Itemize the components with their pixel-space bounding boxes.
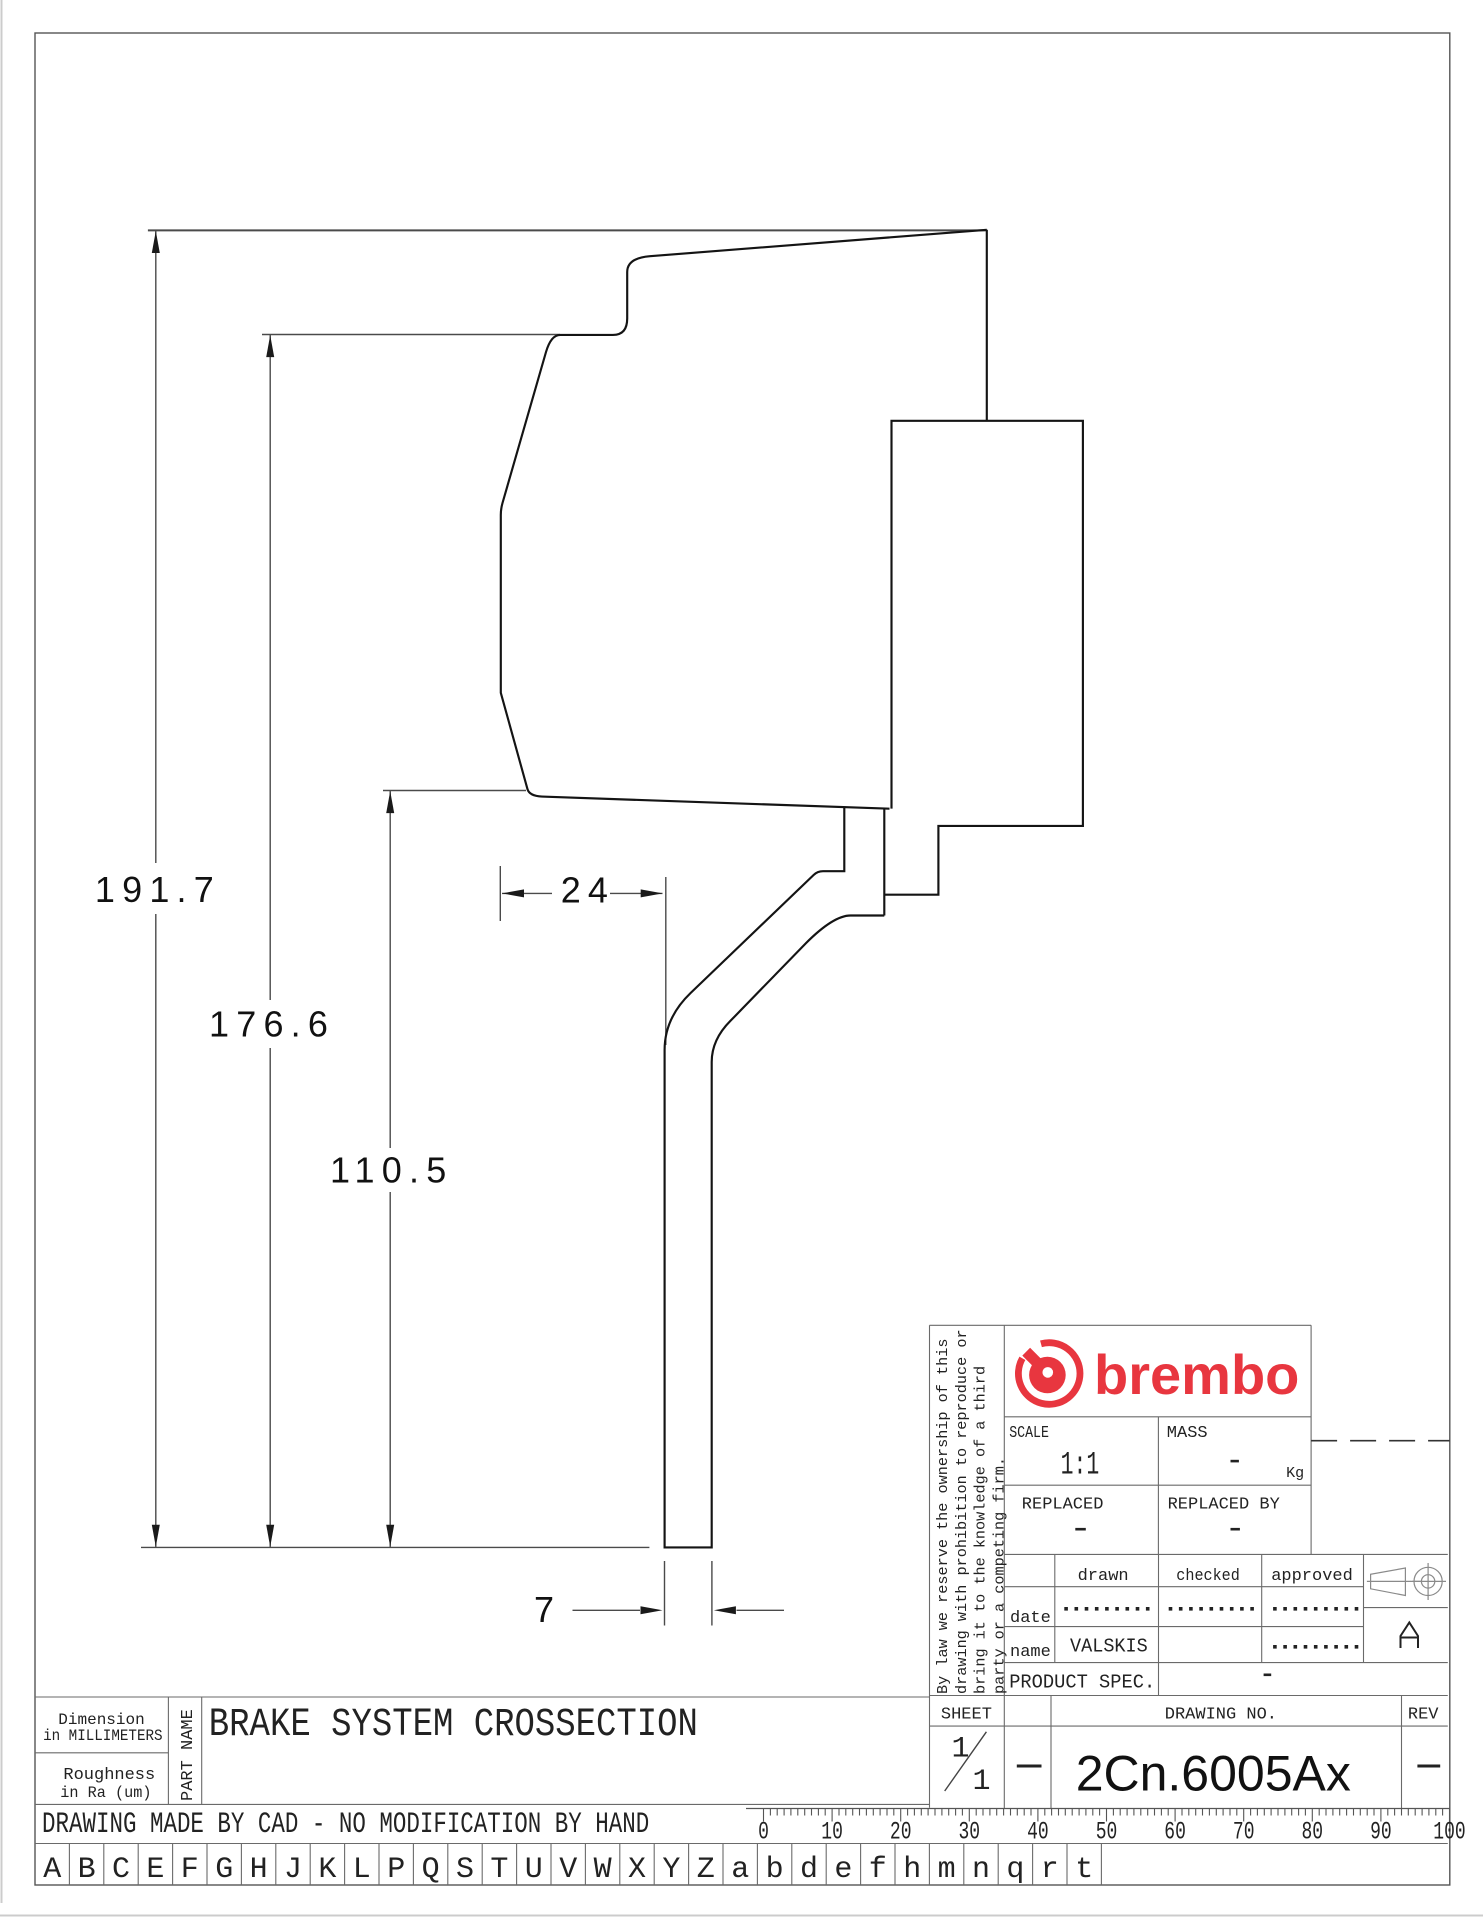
svg-text:Kg: Kg (1286, 1465, 1304, 1482)
svg-text:r: r (1041, 1853, 1059, 1887)
svg-text:Roughness: Roughness (63, 1766, 155, 1785)
svg-text:date: date (1010, 1609, 1051, 1628)
svg-text:191.7: 191.7 (95, 869, 221, 910)
svg-text:30: 30 (959, 1818, 981, 1847)
svg-text:7: 7 (534, 1589, 561, 1630)
svg-text:24: 24 (561, 870, 615, 911)
svg-text:in MILLIMETERS: in MILLIMETERS (43, 1726, 162, 1745)
svg-text:MASS: MASS (1167, 1424, 1208, 1443)
svg-text:T: T (490, 1853, 508, 1887)
svg-text:S: S (456, 1853, 474, 1887)
svg-text:BRAKE SYSTEM CROSSECTION: BRAKE SYSTEM CROSSECTION (209, 1703, 698, 1748)
svg-text:in Ra (um): in Ra (um) (60, 1784, 151, 1802)
svg-text:drawing with prohibition to re: drawing with prohibition to reproduce or (953, 1329, 971, 1694)
svg-text:K: K (318, 1853, 336, 1887)
svg-text:REPLACED: REPLACED (1022, 1495, 1104, 1514)
svg-text:X: X (628, 1853, 646, 1887)
svg-text:bring it to the knowledge of a: bring it to the knowledge of a third (972, 1366, 990, 1694)
svg-text:SHEET: SHEET (941, 1706, 992, 1725)
svg-text:J: J (284, 1853, 302, 1887)
svg-text:40: 40 (1027, 1818, 1049, 1847)
svg-text:VALSKIS: VALSKIS (1070, 1635, 1148, 1658)
svg-text:100: 100 (1433, 1818, 1465, 1847)
svg-text:70: 70 (1233, 1818, 1255, 1847)
svg-text:C: C (112, 1853, 130, 1887)
svg-text:E: E (146, 1853, 164, 1887)
svg-text:DRAWING NO.: DRAWING NO. (1165, 1706, 1277, 1725)
svg-text:1:1: 1:1 (1061, 1448, 1100, 1484)
svg-text:Q: Q (422, 1853, 440, 1887)
svg-text:brembo: brembo (1094, 1343, 1299, 1406)
svg-text:n: n (972, 1853, 990, 1887)
svg-text:party or a competing firm.: party or a competing firm. (990, 1457, 1008, 1694)
svg-text:checked: checked (1176, 1566, 1240, 1585)
svg-text:PART NAME: PART NAME (179, 1709, 198, 1801)
svg-text:W: W (594, 1853, 612, 1887)
svg-text:P: P (387, 1853, 405, 1887)
svg-text:Y: Y (662, 1853, 680, 1887)
svg-text:By law we reserve the ownershi: By law we reserve the ownership of this (934, 1339, 952, 1694)
svg-text:REV: REV (1408, 1706, 1439, 1725)
svg-text:drawn: drawn (1078, 1567, 1129, 1586)
svg-text:L: L (353, 1853, 371, 1887)
svg-text:A: A (43, 1853, 61, 1887)
svg-text:10: 10 (821, 1818, 843, 1847)
svg-text:U: U (525, 1853, 543, 1887)
svg-text:name: name (1010, 1643, 1051, 1662)
svg-text:50: 50 (1096, 1818, 1118, 1847)
svg-text:e: e (834, 1853, 852, 1887)
svg-text:DRAWING MADE BY CAD - NO MODIF: DRAWING MADE BY CAD - NO MODIFICATION BY… (42, 1807, 649, 1841)
svg-text:V: V (559, 1853, 577, 1887)
svg-text:1: 1 (973, 1765, 991, 1799)
svg-text:REPLACED BY: REPLACED BY (1168, 1495, 1280, 1514)
svg-text:2Cn.6005Ax: 2Cn.6005Ax (1076, 1746, 1351, 1802)
svg-text:176.6: 176.6 (209, 1004, 335, 1045)
svg-text:60: 60 (1164, 1818, 1186, 1847)
svg-text:110.5: 110.5 (330, 1150, 453, 1191)
svg-text:q: q (1006, 1853, 1024, 1887)
svg-text:B: B (78, 1853, 96, 1887)
svg-text:H: H (250, 1853, 268, 1887)
svg-text:Z: Z (697, 1853, 715, 1887)
svg-text:f: f (869, 1853, 887, 1887)
svg-text:b: b (766, 1853, 784, 1887)
svg-text:90: 90 (1370, 1818, 1392, 1847)
svg-text:G: G (215, 1853, 233, 1887)
svg-text:20: 20 (890, 1818, 912, 1847)
svg-text:PRODUCT SPEC.: PRODUCT SPEC. (1009, 1671, 1155, 1693)
svg-text:1: 1 (952, 1733, 970, 1767)
svg-text:a: a (731, 1853, 749, 1887)
svg-text:t: t (1075, 1853, 1093, 1887)
svg-text:d: d (800, 1853, 818, 1887)
svg-text:approved: approved (1271, 1567, 1353, 1586)
svg-text:F: F (181, 1853, 199, 1887)
svg-text:SCALE: SCALE (1009, 1423, 1049, 1443)
svg-text:0: 0 (758, 1818, 769, 1847)
svg-text:m: m (938, 1853, 956, 1887)
svg-text:80: 80 (1302, 1818, 1324, 1847)
svg-text:h: h (903, 1853, 921, 1887)
